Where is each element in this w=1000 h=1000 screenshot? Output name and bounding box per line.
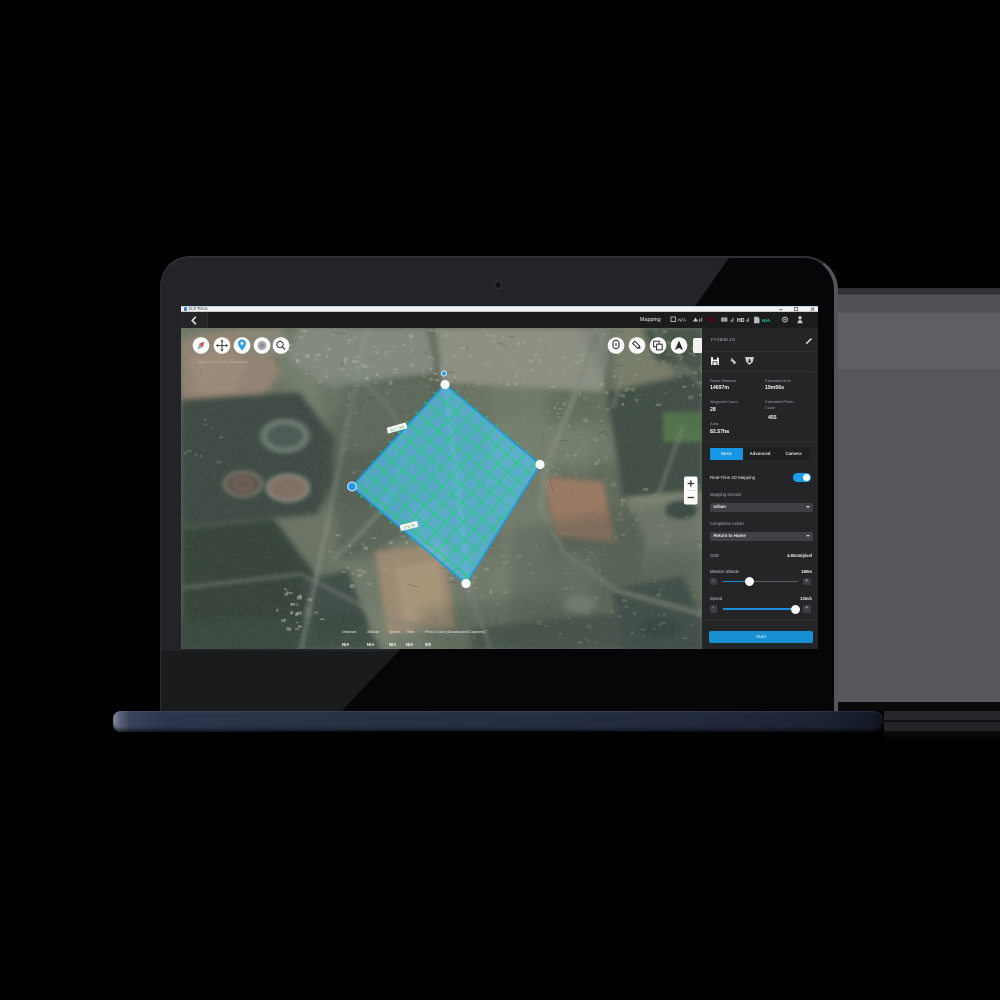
svg-text:Photo Count (Downloaded/Captur: Photo Count (Downloaded/Captured) bbox=[425, 630, 486, 634]
svg-text:N/A: N/A bbox=[762, 318, 771, 324]
svg-text:HD: HD bbox=[737, 318, 745, 324]
svg-text:N/A: N/A bbox=[389, 642, 396, 647]
svg-text:N/A: N/A bbox=[406, 642, 413, 647]
svg-text:0/0: 0/0 bbox=[425, 642, 431, 647]
svg-text:Distance: Distance bbox=[342, 630, 356, 634]
svg-text:Time: Time bbox=[406, 630, 414, 634]
svg-text:N/A: N/A bbox=[342, 642, 349, 647]
svg-text:Altitude: Altitude bbox=[367, 630, 379, 634]
svg-text:Image (c) 2020 Maxar Technolog: Image (c) 2020 Maxar Technologies bbox=[197, 360, 248, 364]
svg-text:N/A: N/A bbox=[367, 642, 374, 647]
svg-text:N/A: N/A bbox=[678, 318, 687, 324]
svg-text:Speed: Speed bbox=[389, 630, 400, 634]
